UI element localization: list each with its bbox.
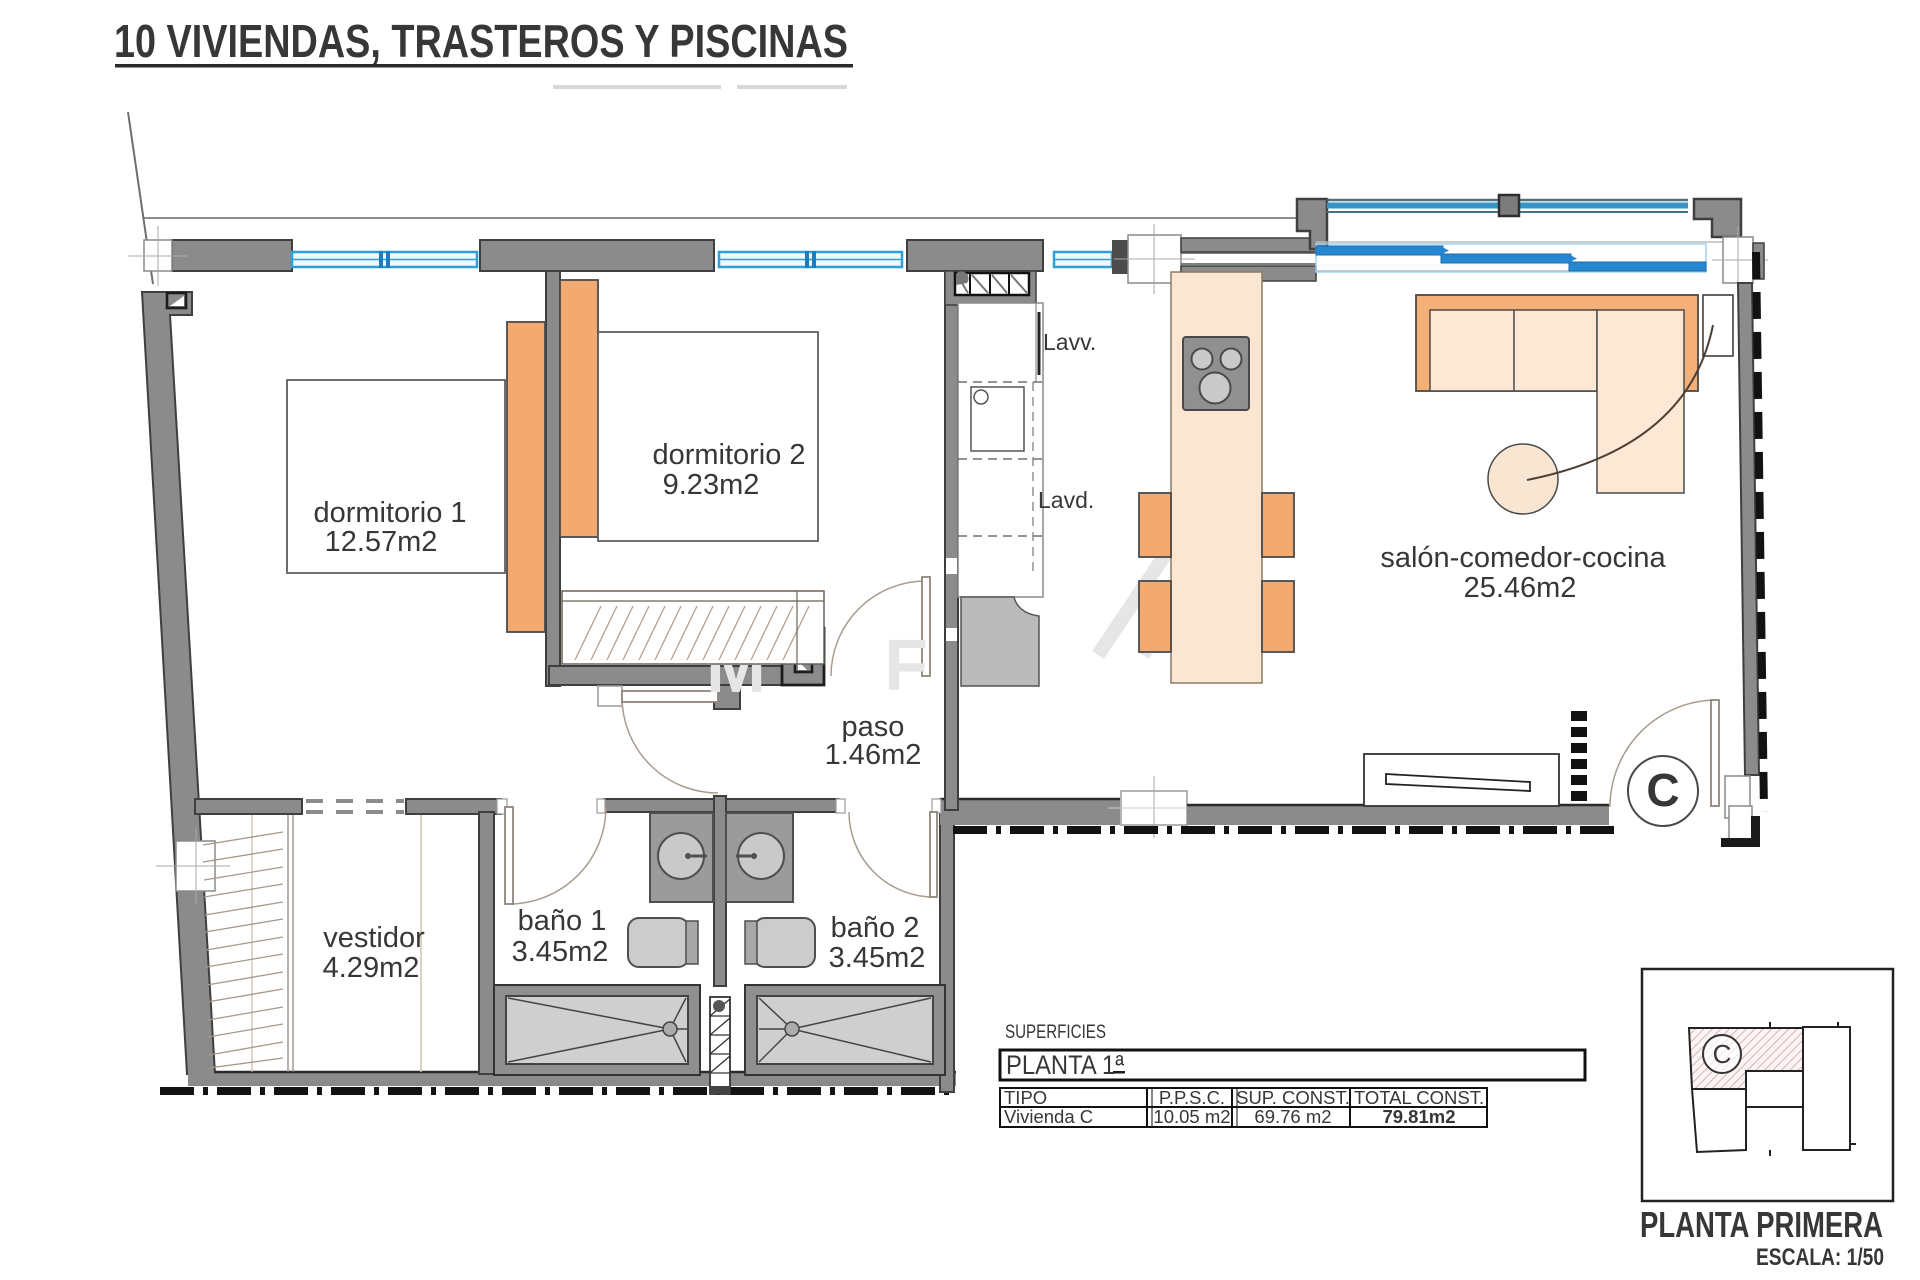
svg-text:3.45m2: 3.45m2 [512,936,609,968]
svg-text:C: C [1646,764,1679,816]
svg-text:PLANTA 1ª: PLANTA 1ª [1006,1050,1125,1080]
svg-text:vestidor: vestidor [323,922,425,954]
svg-text:SUP. CONST.: SUP. CONST. [1236,1087,1350,1108]
svg-text:10 VIVIENDAS, TRASTEROS Y PISC: 10 VIVIENDAS, TRASTEROS Y PISCINAS [114,15,848,67]
svg-text:12.57m2: 12.57m2 [325,526,438,558]
svg-text:C: C [1713,1039,1732,1069]
svg-text:9.23m2: 9.23m2 [663,469,760,501]
svg-text:F: F [884,626,928,706]
svg-text:PLANTA PRIMERA: PLANTA PRIMERA [1640,1204,1883,1245]
svg-text:4.29m2: 4.29m2 [323,952,420,984]
svg-text:Lavv.: Lavv. [1043,329,1096,355]
svg-text:baño 2: baño 2 [831,912,920,944]
svg-text:ESCALA: 1/50: ESCALA: 1/50 [1756,1244,1884,1271]
svg-text:3.45m2: 3.45m2 [829,942,926,974]
svg-text:TIPO: TIPO [1004,1087,1047,1108]
svg-text:TOTAL CONST.: TOTAL CONST. [1354,1087,1484,1108]
svg-text:Lavd.: Lavd. [1038,487,1094,513]
svg-text:69.76 m2: 69.76 m2 [1254,1106,1331,1127]
svg-text:25.46m2: 25.46m2 [1464,572,1577,604]
svg-text:Vivienda C: Vivienda C [1004,1106,1093,1127]
svg-text:1.46m2: 1.46m2 [825,739,922,771]
svg-text:P.P.S.C.: P.P.S.C. [1159,1087,1225,1108]
svg-text:salón-comedor-cocina: salón-comedor-cocina [1380,542,1666,574]
svg-text:baño 1: baño 1 [518,905,607,937]
svg-text:dormitorio 1: dormitorio 1 [313,497,466,529]
svg-text:79.81m2: 79.81m2 [1382,1106,1455,1127]
svg-text:dormitorio 2: dormitorio 2 [652,439,805,471]
svg-text:10.05 m2: 10.05 m2 [1153,1106,1230,1127]
svg-text:SUPERFICIES: SUPERFICIES [1005,1022,1106,1043]
